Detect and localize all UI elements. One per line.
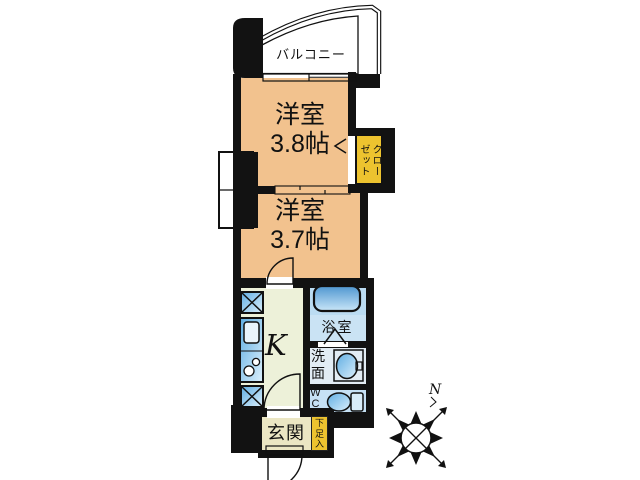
shoebox-label: 下 足 入 (311, 416, 328, 451)
kitchen-label: K (265, 328, 287, 362)
pillar (233, 18, 263, 78)
balcony-outline (259, 7, 379, 74)
room2-size: 3.7帖 (243, 226, 357, 255)
wash-label-line1: 洗 (305, 348, 331, 365)
floor-plan: バルコニー 洋室 3.8帖 洋室 3.7帖 クロー ゼット 浴室 K 洗 面 W… (0, 0, 640, 480)
compass-rose (386, 397, 447, 468)
entrance-label: 玄関 (261, 419, 311, 445)
room1-name: 洋室 (245, 101, 355, 130)
wash-label: 洗 面 (305, 348, 331, 382)
toilet-icon (328, 393, 364, 411)
shoebox-label-line1: 下 (312, 418, 327, 429)
wash-label-line2: 面 (305, 365, 331, 382)
room2-name: 洋室 (243, 197, 357, 226)
kitchen-counter-icon (240, 318, 263, 382)
room2-label: 洋室 3.7帖 (243, 197, 357, 255)
shoebox-label-line3: 入 (312, 439, 327, 450)
wc-label: W C (307, 388, 324, 410)
room1-label: 洋室 3.8帖 (245, 101, 355, 159)
bath-label: 浴室 (309, 317, 366, 337)
balcony-label: バルコニー (263, 44, 359, 63)
closet-label-col1: クロー (369, 138, 381, 183)
closet-label-col2: ゼット (357, 138, 369, 183)
compass-north-label: N (429, 382, 441, 398)
appliance-space-icon (241, 292, 263, 313)
closet-label: クロー ゼット (355, 134, 383, 185)
room1-size: 3.8帖 (245, 130, 355, 159)
appliance-space-icon (241, 386, 263, 407)
bathtub-icon (314, 286, 360, 311)
shoebox-label-line2: 足 (312, 429, 327, 440)
wc-label-line2: C (307, 399, 324, 410)
